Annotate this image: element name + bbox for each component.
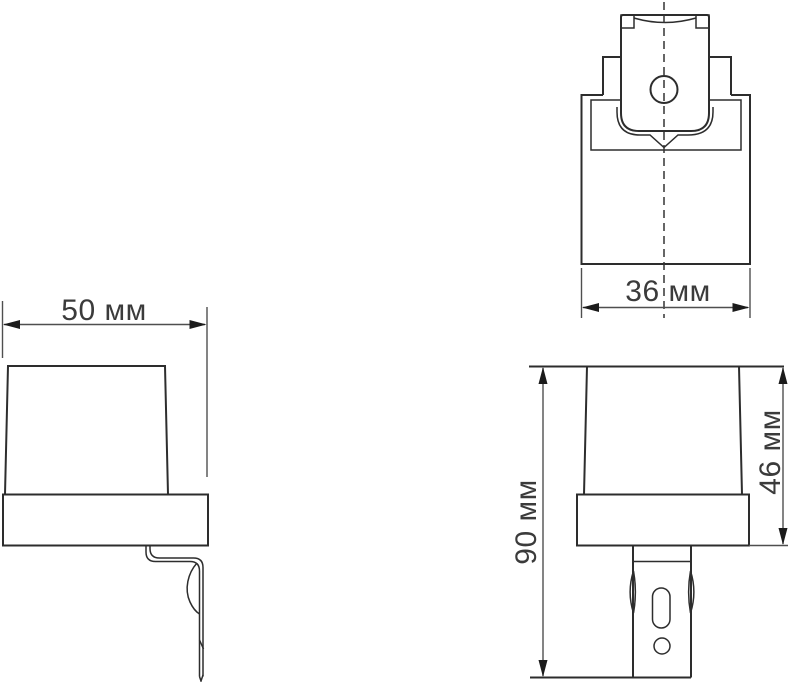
arrowhead-left [3, 320, 20, 329]
arrowhead-right [733, 303, 750, 312]
front-view: 50 мм [3, 294, 209, 681]
top-view: 36 мм [582, 2, 751, 318]
dimension-label-front-width: 50 мм [61, 294, 146, 327]
mount-clip-spring [187, 563, 199, 614]
bracket-slot [653, 588, 671, 628]
arrowhead-right [190, 320, 207, 329]
bracket-sides [633, 546, 691, 678]
side-view-base [577, 495, 749, 546]
arrowhead-up [779, 367, 788, 384]
mount-clip-outer [146, 546, 200, 677]
front-view-base [3, 495, 208, 546]
dimension-label-top-width: 36 мм [625, 275, 710, 308]
arrowhead-up [539, 367, 548, 384]
arrowhead-left [582, 303, 599, 312]
technical-drawing-canvas: 36 мм 50 мм [0, 0, 789, 682]
front-view-cup [5, 366, 168, 495]
sensor-head [621, 15, 709, 131]
side-view: 90 мм 46 мм [510, 367, 788, 678]
dimension-label-body-height: 46 мм [754, 409, 787, 494]
bracket-hole [654, 638, 670, 654]
arrowhead-down [539, 660, 548, 677]
arrowhead-down [779, 528, 788, 545]
drawing-svg: 36 мм 50 мм [0, 0, 789, 682]
side-view-cup [584, 367, 742, 495]
dimension-label-overall-height: 90 мм [510, 479, 543, 564]
